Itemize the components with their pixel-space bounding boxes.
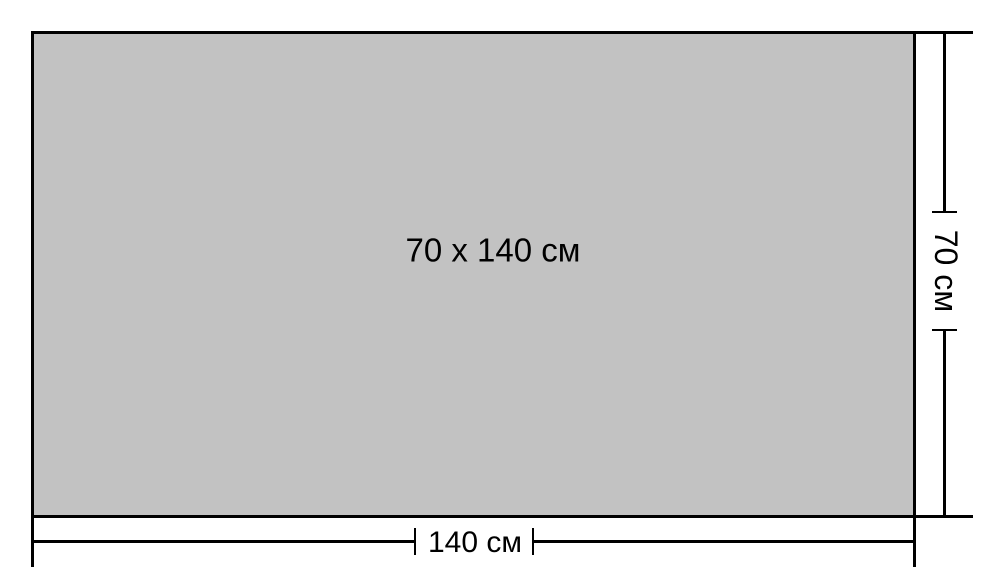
width-dimension-tick-left xyxy=(414,528,416,555)
dimension-diagram: 70 x 140 см 70 см 140 см xyxy=(0,0,1000,582)
height-dimension-line-upper xyxy=(943,33,946,212)
height-dimension-line-lower xyxy=(943,330,946,516)
width-dimension-line-left xyxy=(33,540,414,543)
width-dimension-tick-right xyxy=(532,528,534,555)
width-dimension-line-right xyxy=(534,540,915,543)
height-dimension-tick-upper xyxy=(932,211,957,213)
height-dimension-tick-lower xyxy=(932,329,957,331)
width-dimension-label: 140 см xyxy=(428,528,522,558)
panel-rectangle xyxy=(31,31,916,518)
height-dimension-label: 70 см xyxy=(930,230,962,312)
size-label: 70 x 140 см xyxy=(406,234,581,267)
